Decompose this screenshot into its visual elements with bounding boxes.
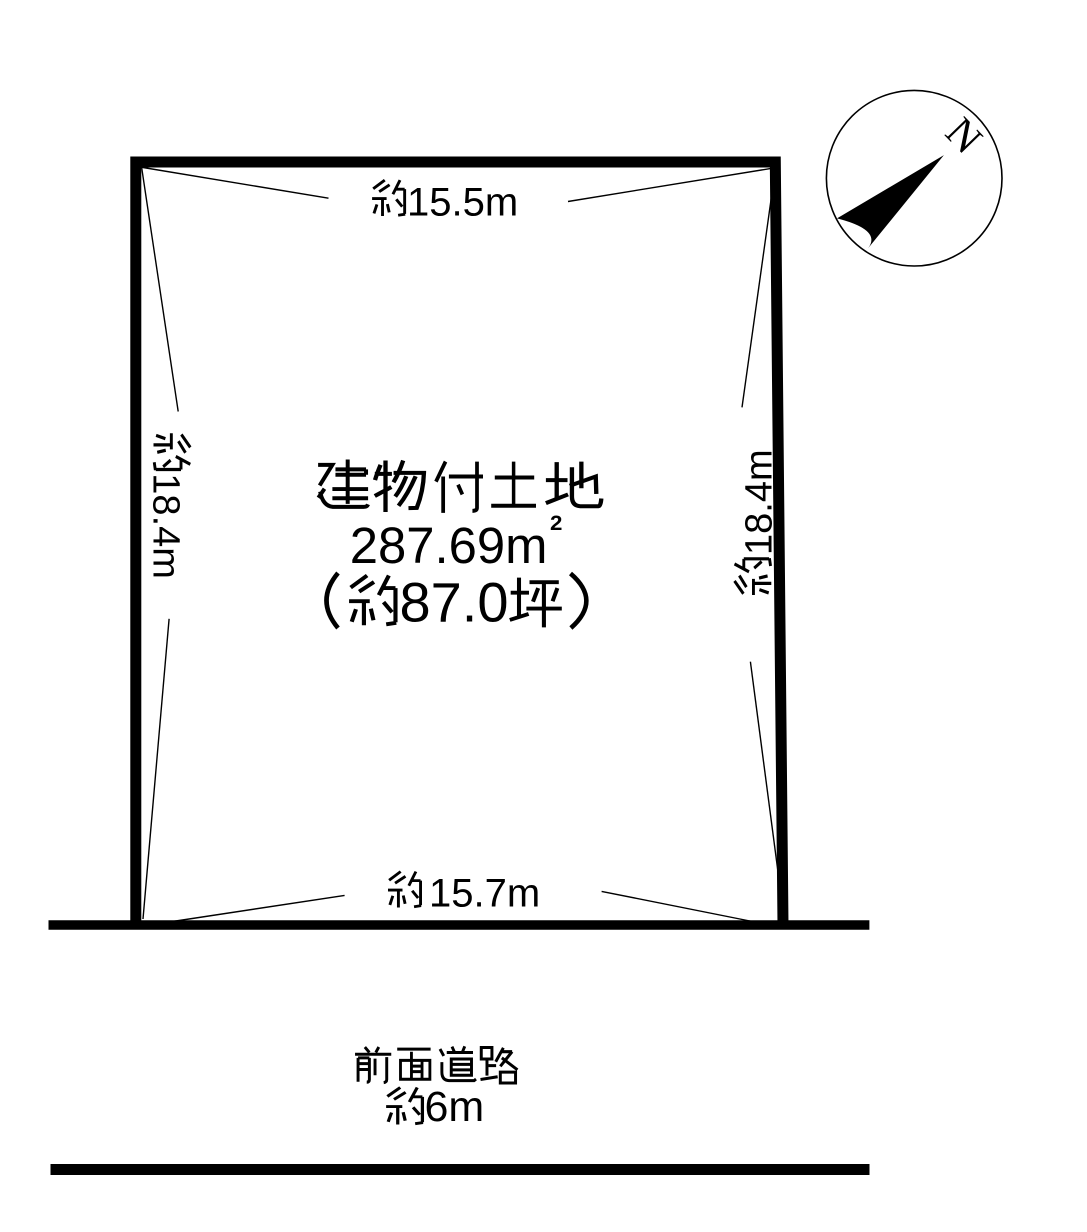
svg-text:287.69m: 287.69m [350, 517, 548, 574]
svg-text:6m: 6m [425, 1083, 485, 1131]
svg-text:15.5m: 15.5m [407, 181, 518, 225]
svg-text:87.0: 87.0 [400, 570, 509, 633]
svg-text:15.7m: 15.7m [429, 872, 540, 916]
svg-text:2: 2 [550, 511, 562, 535]
svg-text:18.4m: 18.4m [738, 449, 780, 555]
svg-text:18.4m: 18.4m [145, 473, 187, 579]
